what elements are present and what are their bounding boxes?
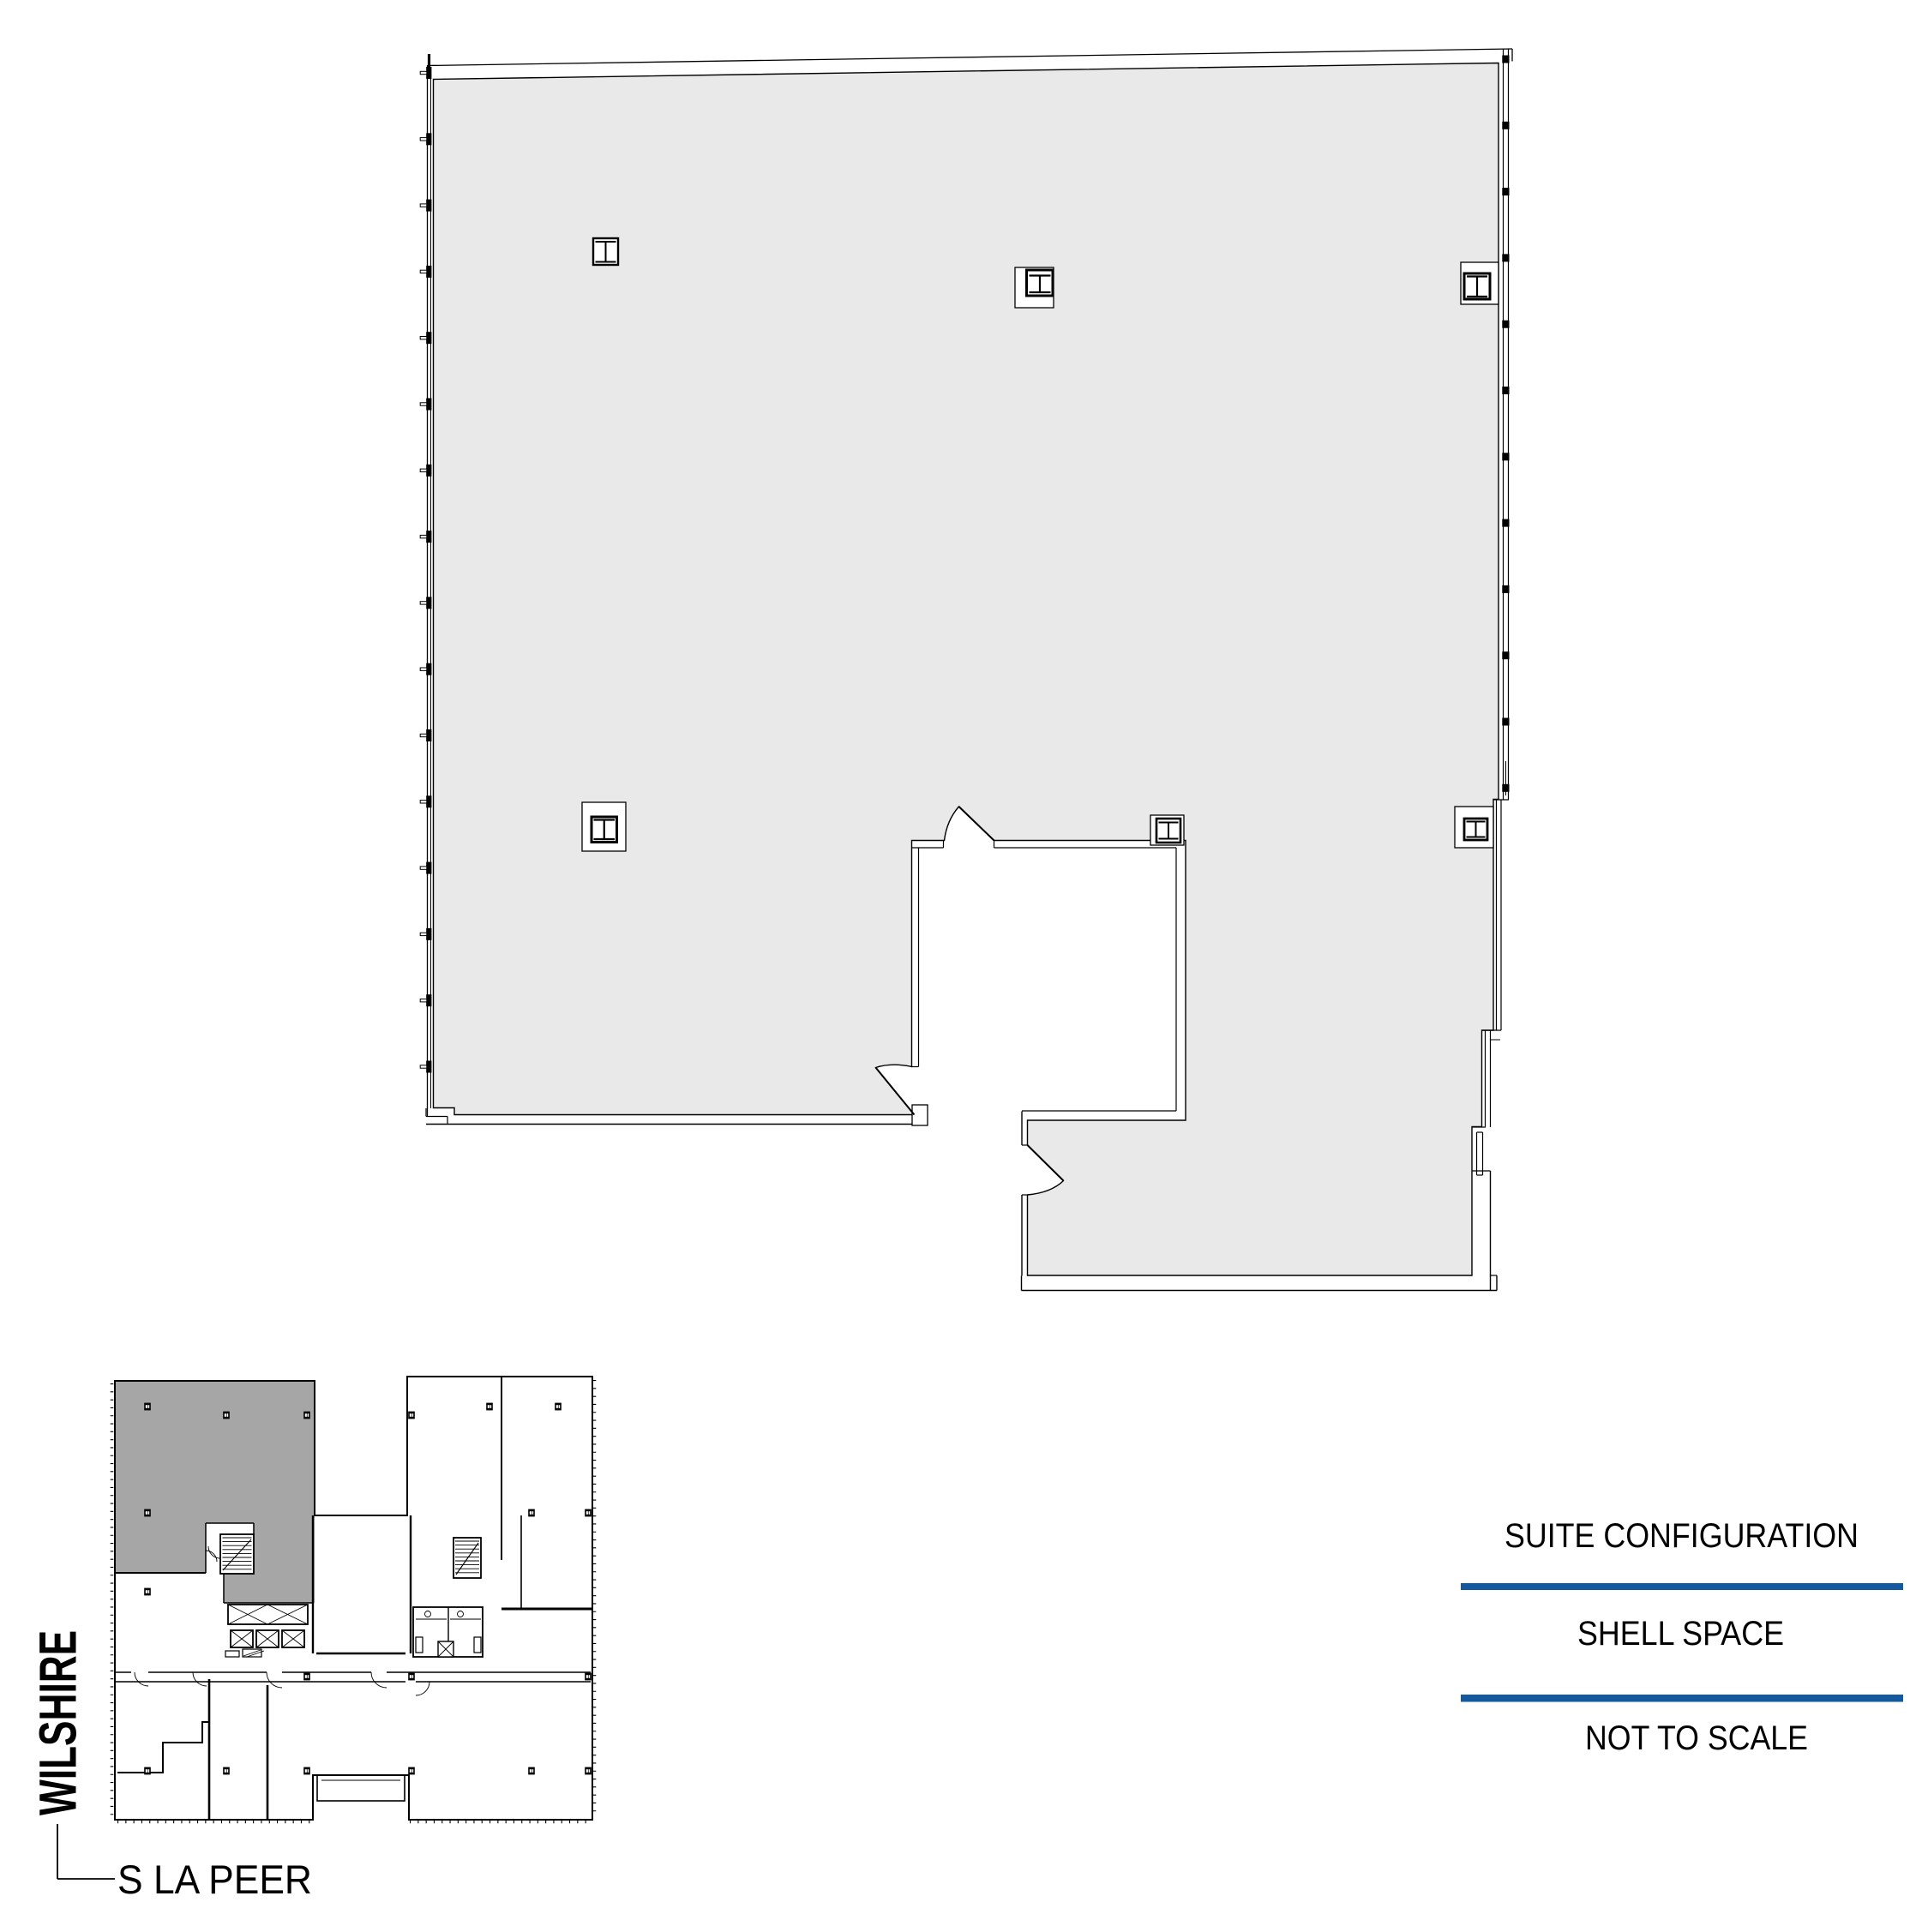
svg-text:NOT TO SCALE: NOT TO SCALE (1585, 1719, 1808, 1757)
svg-text:SHELL SPACE: SHELL SPACE (1577, 1615, 1784, 1653)
svg-text:WILSHIRE: WILSHIRE (30, 1630, 88, 1815)
svg-text:S LA PEER: S LA PEER (117, 1857, 312, 1902)
svg-text:SUITE CONFIGURATION: SUITE CONFIGURATION (1505, 1517, 1859, 1555)
